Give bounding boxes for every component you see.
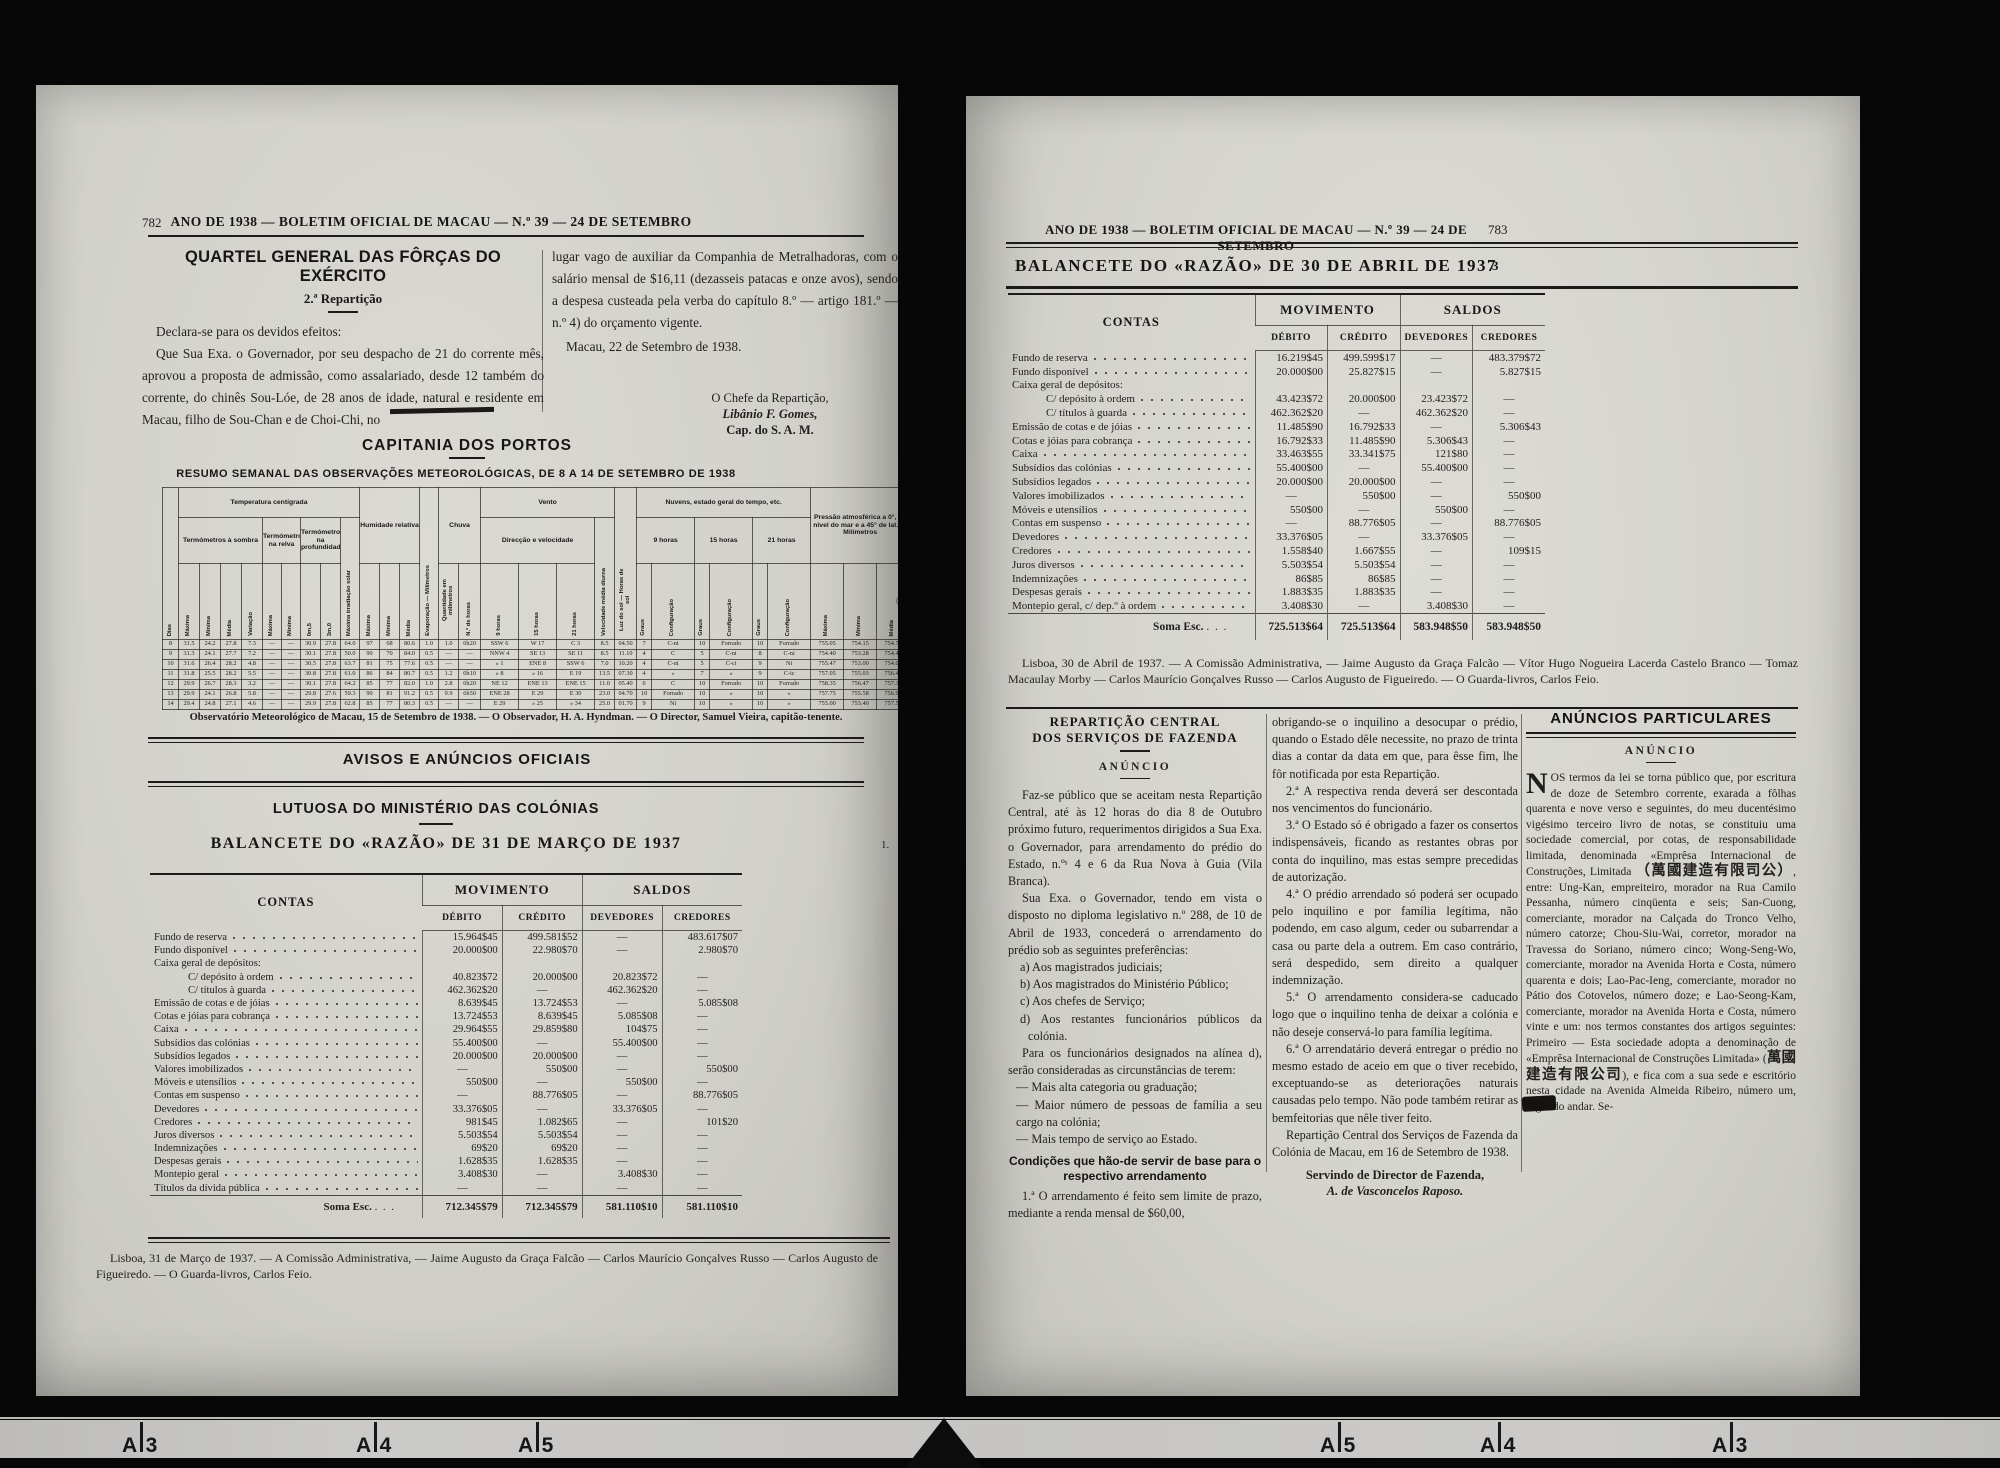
amount-cell: 2.980$70 bbox=[662, 944, 742, 957]
met-cell: 70 bbox=[380, 649, 400, 659]
army-notice-title: QUARTEL GENERAL DAS FÔRÇAS DO EXÉRCITO bbox=[142, 248, 544, 286]
amount-cell: — bbox=[1472, 406, 1545, 420]
amount-cell: — bbox=[1472, 475, 1545, 489]
amount-cell: 499.581$52 bbox=[502, 931, 582, 945]
balancete-subheader-cell: CRÉDITO bbox=[1328, 326, 1400, 351]
amount-cell: — bbox=[582, 997, 662, 1010]
met-cell: 31.8 bbox=[179, 669, 200, 679]
met-header-cell: Máxima irradiação solar bbox=[341, 518, 360, 640]
leader-dots bbox=[1137, 422, 1250, 430]
amount-cell: — bbox=[662, 1010, 742, 1023]
amount-cell: 3.408$30 bbox=[422, 1168, 502, 1181]
film-frame-marker: A4 bbox=[1480, 1422, 1515, 1456]
met-data-row: 1131.825.528.25.5——30.827.861.0868480.70… bbox=[163, 669, 899, 679]
balancete-row: Emissão de cotas e de jóias8.639$4513.72… bbox=[150, 997, 742, 1010]
met-cell: NNW 4 bbox=[481, 649, 519, 659]
marker-tick bbox=[140, 1422, 143, 1452]
met-cell: 5.5 bbox=[242, 669, 263, 679]
army-notice-dateline: Macau, 22 de Setembro de 1938. bbox=[552, 336, 898, 358]
leader-dots bbox=[1110, 491, 1251, 499]
thick-rule bbox=[1006, 286, 1798, 289]
amount-cell: — bbox=[1400, 489, 1472, 503]
met-cell: 755.00 bbox=[811, 699, 844, 709]
account-label-cell: Caixa bbox=[1008, 448, 1255, 462]
met-header-cell: Máxima bbox=[179, 564, 200, 640]
amount-cell: — bbox=[1472, 503, 1545, 517]
army-notice-column-2: lugar vago de auxiliar da Companhia de M… bbox=[552, 246, 898, 438]
gazette-page-right: ANO DE 1938 — BOLETIM OFICIAL DE MACAU —… bbox=[966, 96, 1860, 1396]
met-cell: 1.0 bbox=[439, 639, 459, 649]
amount-cell: — bbox=[582, 931, 662, 945]
balancete-row: Cotas e jóias para cobrança16.792$3311.4… bbox=[1008, 434, 1545, 448]
account-label-cell: Credores bbox=[150, 1116, 422, 1129]
amount-cell: 33.376$05 bbox=[422, 1102, 502, 1115]
amount-cell: — bbox=[662, 1142, 742, 1155]
marker-letter: A bbox=[122, 1435, 137, 1456]
met-cell: » bbox=[768, 699, 811, 709]
amount-cell: — bbox=[1328, 599, 1400, 613]
leader-dots bbox=[226, 1156, 417, 1164]
met-data-row: 1031.626.428.24.8——30.527.863.7817577.60… bbox=[163, 659, 899, 669]
met-cell: 27.8 bbox=[321, 699, 341, 709]
met-cell: 31.3 bbox=[179, 649, 200, 659]
fazenda-paragraph: Para os funcionários designados na alíne… bbox=[1008, 1045, 1262, 1079]
account-label-cell: Fundo de reserva bbox=[150, 931, 422, 945]
account-label-cell: Subsídios legados bbox=[1008, 475, 1255, 489]
met-cell: 24.1 bbox=[200, 649, 221, 659]
amount-cell: 3.408$30 bbox=[1400, 599, 1472, 613]
fazenda-paragraph: obrigando-se o inquilino a desocupar o p… bbox=[1272, 714, 1518, 783]
met-cell: 1.0 bbox=[420, 679, 439, 689]
met-cell: 28.2 bbox=[221, 669, 242, 679]
army-notice-paragraph: Que Sua Exa. o Governador, por seu despa… bbox=[142, 343, 544, 431]
met-cell: 0h20 bbox=[459, 639, 481, 649]
double-rule bbox=[148, 781, 864, 787]
met-data-row: 931.324.127.77.2——30.127.850.0907084.00.… bbox=[163, 649, 899, 659]
ink-stamp-blot bbox=[1522, 1095, 1557, 1112]
met-cell: 6 bbox=[637, 679, 652, 689]
leader-dots bbox=[1137, 436, 1250, 444]
leader-dots bbox=[232, 932, 418, 940]
met-cell: 64.0 bbox=[341, 639, 360, 649]
amount-cell: 5.503$54 bbox=[422, 1129, 502, 1142]
amount-cell: 69$20 bbox=[422, 1142, 502, 1155]
met-header-cell: 15 horas bbox=[519, 564, 557, 640]
met-header-cell: 9 horas bbox=[481, 564, 519, 640]
amount-cell: — bbox=[662, 1102, 742, 1115]
met-cell: — bbox=[263, 699, 282, 709]
amount-cell: — bbox=[502, 1076, 582, 1089]
marker-letter: A bbox=[356, 1435, 371, 1456]
leader-dots bbox=[1064, 532, 1250, 540]
signature-role: O Chefe da Repartição, bbox=[642, 390, 898, 406]
met-cell: 5 bbox=[695, 659, 710, 669]
fazenda-column-2: obrigando-se o inquilino a desocupar o p… bbox=[1272, 714, 1518, 1199]
amount-cell: 16.792$33 bbox=[1255, 434, 1327, 448]
microfilm-scan-viewport: 782 ANO DE 1938 — BOLETIM OFICIAL DE MAC… bbox=[0, 0, 2000, 1468]
met-cell: 10 bbox=[753, 699, 768, 709]
amount-cell: — bbox=[1328, 461, 1400, 475]
met-cell: 24.1 bbox=[200, 689, 221, 699]
account-label-cell: Móveis e utensílios bbox=[150, 1076, 422, 1089]
met-cell: 26.8 bbox=[221, 689, 242, 699]
amount-cell: 88.776$05 bbox=[662, 1089, 742, 1102]
account-label-cell: Juros diversos bbox=[150, 1129, 422, 1142]
met-cell: — bbox=[263, 639, 282, 649]
leader-dots bbox=[235, 1051, 418, 1059]
met-cell: 85 bbox=[360, 699, 380, 709]
met-header-cell: 3m,0 bbox=[321, 564, 341, 640]
met-cell: 754.70 bbox=[877, 639, 898, 649]
section-rule bbox=[1006, 707, 1798, 709]
met-cell: 8.5 bbox=[595, 649, 615, 659]
leader-dots bbox=[1140, 394, 1251, 402]
met-cell: 755.05 bbox=[811, 639, 844, 649]
army-notice-paragraph: Declara-se para os devidos efeitos: bbox=[142, 321, 544, 343]
met-cell: » 34 bbox=[557, 699, 595, 709]
marker-digit: 4 bbox=[1504, 1435, 1516, 1456]
met-table-footer: Observatório Meteorológico de Macau, 15 … bbox=[136, 712, 896, 723]
leader-dots bbox=[241, 1077, 417, 1085]
amount-cell bbox=[662, 957, 742, 970]
amount-cell: — bbox=[502, 984, 582, 997]
met-header-cell: N.º de horas bbox=[459, 564, 481, 640]
account-label-cell: Caixa bbox=[150, 1023, 422, 1036]
amount-cell: — bbox=[502, 1168, 582, 1181]
met-cell: 11.0 bbox=[595, 679, 615, 689]
met-cell: 25.0 bbox=[595, 699, 615, 709]
met-header-cell: Velocidade média diurna bbox=[595, 518, 615, 640]
fazenda-paragraph: 4.ª O prédio arrendado só poderá ser ocu… bbox=[1272, 886, 1518, 989]
amount-cell: 13.724$53 bbox=[502, 997, 582, 1010]
met-header-row: DiasTemperatura centígradaHumidade relat… bbox=[163, 488, 899, 518]
leader-dots bbox=[245, 1090, 418, 1098]
met-cell: 754.00 bbox=[877, 659, 898, 669]
met-cell: 85 bbox=[360, 679, 380, 689]
leader-dots bbox=[184, 1024, 418, 1032]
amount-cell: 5.827$15 bbox=[1472, 365, 1545, 379]
met-cell: 04.50 bbox=[615, 639, 637, 649]
account-label-cell: Subsídios das colónias bbox=[150, 1037, 422, 1050]
met-cell: 90 bbox=[360, 649, 380, 659]
met-table-holder: DiasTemperatura centígradaHumidade relat… bbox=[162, 487, 898, 710]
amount-cell: — bbox=[582, 1116, 662, 1129]
fazenda-signature-role: Servindo de Director de Fazenda, bbox=[1272, 1167, 1518, 1183]
amount-cell: — bbox=[662, 1129, 742, 1142]
amount-cell: — bbox=[662, 1050, 742, 1063]
amount-cell: — bbox=[662, 984, 742, 997]
film-edge-band bbox=[0, 1420, 2000, 1458]
met-header-cell: Chuva bbox=[439, 488, 481, 564]
amount-cell: — bbox=[582, 1089, 662, 1102]
met-cell: 27.8 bbox=[321, 649, 341, 659]
met-cell: 9 bbox=[637, 699, 652, 709]
amount-cell: — bbox=[662, 1155, 742, 1168]
film-frame-marker: A3 bbox=[122, 1422, 157, 1456]
balancete-table: CONTASMOVIMENTOSALDOSDÉBITOCRÉDITODEVEDO… bbox=[1008, 293, 1545, 640]
met-cell: » bbox=[710, 669, 753, 679]
amount-cell bbox=[502, 957, 582, 970]
account-label-cell: Subsídios legados bbox=[150, 1050, 422, 1063]
met-cell: 05.40 bbox=[615, 679, 637, 689]
amount-cell: — bbox=[662, 1182, 742, 1196]
amount-cell: — bbox=[1328, 503, 1400, 517]
leader-dots bbox=[1043, 449, 1251, 457]
fazenda-dash-item: — Maior número de pessoas de família a s… bbox=[1008, 1097, 1262, 1131]
amount-cell: 499.599$17 bbox=[1328, 351, 1400, 365]
balancete-row: Credores981$451.082$65—101$20 bbox=[150, 1116, 742, 1129]
amount-cell: — bbox=[1400, 420, 1472, 434]
account-label-cell: C/ depósito à ordem bbox=[150, 971, 422, 984]
met-cell: SSW 6 bbox=[557, 659, 595, 669]
amount-cell: 121$80 bbox=[1400, 448, 1472, 462]
met-header-cell: Mínima bbox=[380, 564, 400, 640]
amount-cell: — bbox=[502, 1182, 582, 1196]
fazenda-heading-line1: REPARTIÇÃO CENTRAL bbox=[1050, 714, 1221, 729]
balancete-row: Cotas e jóias para cobrança13.724$538.63… bbox=[150, 1010, 742, 1023]
met-cell: 756.90 bbox=[877, 689, 898, 699]
balancete-soma-row: Soma Esc.725.513$64725.513$64583.948$505… bbox=[1008, 614, 1545, 641]
met-cell: 10 bbox=[753, 639, 768, 649]
met-cell: SE 13 bbox=[519, 649, 557, 659]
met-header-row: Termómetros à sombraTermómetro na relvaT… bbox=[163, 518, 899, 564]
met-cell: SSW 6 bbox=[481, 639, 519, 649]
divider-rule bbox=[449, 457, 485, 459]
amount-cell: 88.776$05 bbox=[1328, 517, 1400, 531]
balancete-subheader-cell: CRÉDITO bbox=[502, 906, 582, 931]
met-cell: 1.2 bbox=[439, 669, 459, 679]
met-cell: 28.2 bbox=[221, 659, 242, 669]
met-cell: — bbox=[282, 679, 301, 689]
marker-tick bbox=[374, 1422, 377, 1452]
amount-cell: 13.724$53 bbox=[422, 1010, 502, 1023]
met-header-cell: Mínima bbox=[200, 564, 221, 640]
met-cell: 10 bbox=[695, 699, 710, 709]
account-label-cell: Fundo disponível bbox=[150, 944, 422, 957]
amount-cell: 20.823$72 bbox=[582, 971, 662, 984]
met-cell: » 8 bbox=[481, 669, 519, 679]
met-cell: 7.0 bbox=[595, 659, 615, 669]
amount-cell: 29.859$80 bbox=[502, 1023, 582, 1036]
met-cell: — bbox=[263, 689, 282, 699]
met-cell: 27.8 bbox=[221, 639, 242, 649]
marker-tick bbox=[1730, 1422, 1733, 1452]
leader-dots bbox=[1093, 353, 1251, 361]
met-cell: 29.9 bbox=[301, 699, 321, 709]
met-cell: 10 bbox=[753, 679, 768, 689]
met-cell: 0h20 bbox=[459, 679, 481, 689]
met-cell: 62.8 bbox=[341, 699, 360, 709]
met-cell: 8 bbox=[163, 639, 179, 649]
amount-cell: 5.503$54 bbox=[1255, 558, 1327, 572]
amount-cell: 1.667$55 bbox=[1328, 544, 1400, 558]
amount-cell: 15.964$45 bbox=[422, 931, 502, 945]
amount-cell: 16.219$45 bbox=[1255, 351, 1327, 365]
met-header-cell: Máxima bbox=[263, 564, 282, 640]
divider-rule bbox=[1120, 750, 1150, 752]
met-cell: Forrado bbox=[768, 679, 811, 689]
met-header-cell: 15 horas bbox=[695, 518, 753, 564]
amount-cell: 33.376$05 bbox=[1400, 530, 1472, 544]
amount-cell: 5.085$08 bbox=[582, 1010, 662, 1023]
met-cell: 753.00 bbox=[844, 659, 877, 669]
balancete-right-holder: CONTASMOVIMENTOSALDOSDÉBITOCRÉDITODEVEDO… bbox=[1008, 293, 1545, 640]
balancete-row: Subsídios legados20.000$0020.000$00—— bbox=[150, 1050, 742, 1063]
amount-cell: — bbox=[1328, 406, 1400, 420]
amount-cell: — bbox=[662, 971, 742, 984]
balancete-row: Montepio geral3.408$30—3.408$30— bbox=[150, 1168, 742, 1181]
met-cell: 30.9 bbox=[301, 639, 321, 649]
met-header-cell: Termómetro na profundidade bbox=[301, 518, 341, 564]
balancete-row: C/ depósito à ordem43.423$7220.000$0023.… bbox=[1008, 392, 1545, 406]
balancete-row: Juros diversos5.503$545.503$54—— bbox=[150, 1129, 742, 1142]
met-header-cell: Máxima bbox=[360, 564, 380, 640]
fazenda-paragraph: 1.ª O arrendamento é feito sem limite de… bbox=[1008, 1188, 1262, 1222]
amount-cell: 86$85 bbox=[1328, 572, 1400, 586]
met-cell: 755.03 bbox=[844, 669, 877, 679]
leader-dots bbox=[248, 1064, 418, 1072]
met-cell: 10 bbox=[637, 689, 652, 699]
met-cell: 757.55 bbox=[877, 699, 898, 709]
amount-cell: — bbox=[1400, 558, 1472, 572]
amount-cell: — bbox=[1472, 434, 1545, 448]
gazette-page-left: 782 ANO DE 1938 — BOLETIM OFICIAL DE MAC… bbox=[36, 85, 898, 1396]
fazenda-paragraph: Sua Exa. o Governador, tendo em vista o … bbox=[1008, 890, 1262, 959]
amount-cell: — bbox=[1472, 461, 1545, 475]
fazenda-signature-name: A. de Vasconcelos Raposo. bbox=[1272, 1183, 1518, 1199]
met-cell: 7 bbox=[637, 639, 652, 649]
amount-cell: 5.503$54 bbox=[1328, 558, 1400, 572]
account-label-cell: Despesas gerais bbox=[1008, 586, 1255, 600]
account-label-cell: Montepio geral bbox=[150, 1168, 422, 1181]
amount-cell: 22.980$70 bbox=[502, 944, 582, 957]
met-cell: 5 bbox=[695, 649, 710, 659]
met-cell: — bbox=[282, 699, 301, 709]
amount-cell: 33.376$05 bbox=[1255, 530, 1327, 544]
account-label-cell: Valores imobilizados bbox=[150, 1063, 422, 1076]
fazenda-paragraph: 5.ª O arrendamento considera-se caducado… bbox=[1272, 989, 1518, 1041]
balancete-subheader-cell: DÉBITO bbox=[422, 906, 502, 931]
met-cell: 9 bbox=[753, 669, 768, 679]
account-label-cell: Juros diversos bbox=[1008, 558, 1255, 572]
leader-dots bbox=[1096, 477, 1250, 485]
soma-label: Soma Esc. bbox=[150, 1195, 422, 1218]
met-cell: 0.5 bbox=[420, 669, 439, 679]
amount-cell: 55.400$00 bbox=[582, 1037, 662, 1050]
met-table: DiasTemperatura centígradaHumidade relat… bbox=[162, 487, 898, 710]
divider-rule bbox=[1646, 762, 1676, 764]
amount-cell: 29.964$55 bbox=[422, 1023, 502, 1036]
met-cell: 10.20 bbox=[615, 659, 637, 669]
met-cell: 77 bbox=[380, 679, 400, 689]
met-cell: 23.0 bbox=[595, 689, 615, 699]
met-cell: 27.6 bbox=[321, 689, 341, 699]
amount-cell bbox=[1328, 379, 1400, 393]
met-cell: Ni bbox=[652, 699, 695, 709]
account-label-cell: Devedores bbox=[150, 1102, 422, 1115]
balancete-row: Subsídios das colónias55.400$00—55.400$0… bbox=[1008, 461, 1545, 475]
balancete-row: Devedores33.376$05—33.376$05— bbox=[1008, 530, 1545, 544]
met-cell: 11 bbox=[163, 669, 179, 679]
amount-cell: 3.408$30 bbox=[582, 1168, 662, 1181]
account-label-cell: Fundo de reserva bbox=[1008, 351, 1255, 365]
balancete-header-row: CONTASMOVIMENTOSALDOS bbox=[1008, 294, 1545, 326]
met-cell: 754.15 bbox=[844, 639, 877, 649]
fazenda-conditions-title: Condições que hão-de servir de base para… bbox=[1008, 1154, 1262, 1184]
met-cell: 9.9 bbox=[439, 689, 459, 699]
avisos-section-heading: AVISOS E ANÚNCIOS OFICIAIS bbox=[36, 751, 898, 768]
fazenda-column: REPARTIÇÃO CENTRAL DOS SERVIÇOS DE FAZEN… bbox=[1008, 714, 1262, 1223]
fazenda-dash-item: — Mais tempo de serviço ao Estado. bbox=[1008, 1131, 1262, 1148]
met-cell: 10 bbox=[695, 689, 710, 699]
amount-cell: 8.639$45 bbox=[502, 1010, 582, 1023]
met-cell: 1.0 bbox=[420, 639, 439, 649]
met-cell: NE 12 bbox=[481, 679, 519, 689]
amount-cell bbox=[1400, 379, 1472, 393]
marker-digit: 5 bbox=[542, 1435, 554, 1456]
met-cell: 01.70 bbox=[615, 699, 637, 709]
met-cell: 4 bbox=[637, 659, 652, 669]
particulares-heading: ANÚNCIOS PARTICULARES bbox=[1526, 710, 1796, 728]
double-rule bbox=[1006, 242, 1798, 248]
met-cell: 24.2 bbox=[200, 639, 221, 649]
saldos-header: SALDOS bbox=[582, 874, 742, 906]
contas-header: CONTAS bbox=[150, 874, 422, 931]
met-cell: — bbox=[282, 669, 301, 679]
met-cell: 63.7 bbox=[341, 659, 360, 669]
amount-cell: 1.628$35 bbox=[502, 1155, 582, 1168]
amount-cell: — bbox=[582, 1050, 662, 1063]
met-cell: 31.5 bbox=[179, 639, 200, 649]
balancete-footer-left: Lisboa, 31 de Março de 1937. — A Comissã… bbox=[96, 1250, 878, 1282]
amount-cell: 1.082$65 bbox=[502, 1116, 582, 1129]
met-cell: ENE 28 bbox=[481, 689, 519, 699]
amount-cell: — bbox=[1400, 517, 1472, 531]
leader-dots bbox=[265, 1183, 418, 1191]
met-cell: 756.47 bbox=[844, 679, 877, 689]
met-cell: 0.5 bbox=[420, 659, 439, 669]
met-cell: 29.4 bbox=[179, 699, 200, 709]
met-header-cell: Configuração bbox=[652, 564, 695, 640]
amount-cell: 55.400$00 bbox=[1255, 461, 1327, 475]
met-cell: 82.0 bbox=[400, 679, 420, 689]
soma-amount-cell: 583.948$50 bbox=[1400, 614, 1472, 641]
marker-tick bbox=[1498, 1422, 1501, 1452]
met-cell: 84.0 bbox=[400, 649, 420, 659]
film-scratch-line bbox=[0, 1417, 2000, 1419]
soma-amount-cell: 725.513$64 bbox=[1328, 614, 1400, 641]
amount-cell: — bbox=[422, 1182, 502, 1196]
balancete-row: C/ depósito à ordem40.823$7220.000$0020.… bbox=[150, 971, 742, 984]
leader-dots bbox=[1106, 518, 1250, 526]
met-cell: 80.7 bbox=[400, 669, 420, 679]
amount-cell: — bbox=[422, 1089, 502, 1102]
amount-cell: 55.400$00 bbox=[1400, 461, 1472, 475]
amount-cell: 981$45 bbox=[422, 1116, 502, 1129]
met-cell: 30.8 bbox=[301, 669, 321, 679]
account-label-cell: Fundo disponível bbox=[1008, 365, 1255, 379]
met-cell: Forrado bbox=[652, 689, 695, 699]
amount-cell: 43.423$72 bbox=[1255, 392, 1327, 406]
met-cell: C-ni bbox=[710, 649, 753, 659]
met-cell: 7.3 bbox=[242, 639, 263, 649]
met-cell: SE 11 bbox=[557, 649, 595, 659]
met-summary-title: RESUMO SEMANAL DAS OBSERVAÇÕES METEOROLÓ… bbox=[36, 468, 876, 480]
amount-cell: 462.362$20 bbox=[1400, 406, 1472, 420]
met-cell: 13 bbox=[163, 689, 179, 699]
balancete-row: Títulos da dívida pública———— bbox=[150, 1182, 742, 1196]
met-cell: 27.8 bbox=[321, 639, 341, 649]
